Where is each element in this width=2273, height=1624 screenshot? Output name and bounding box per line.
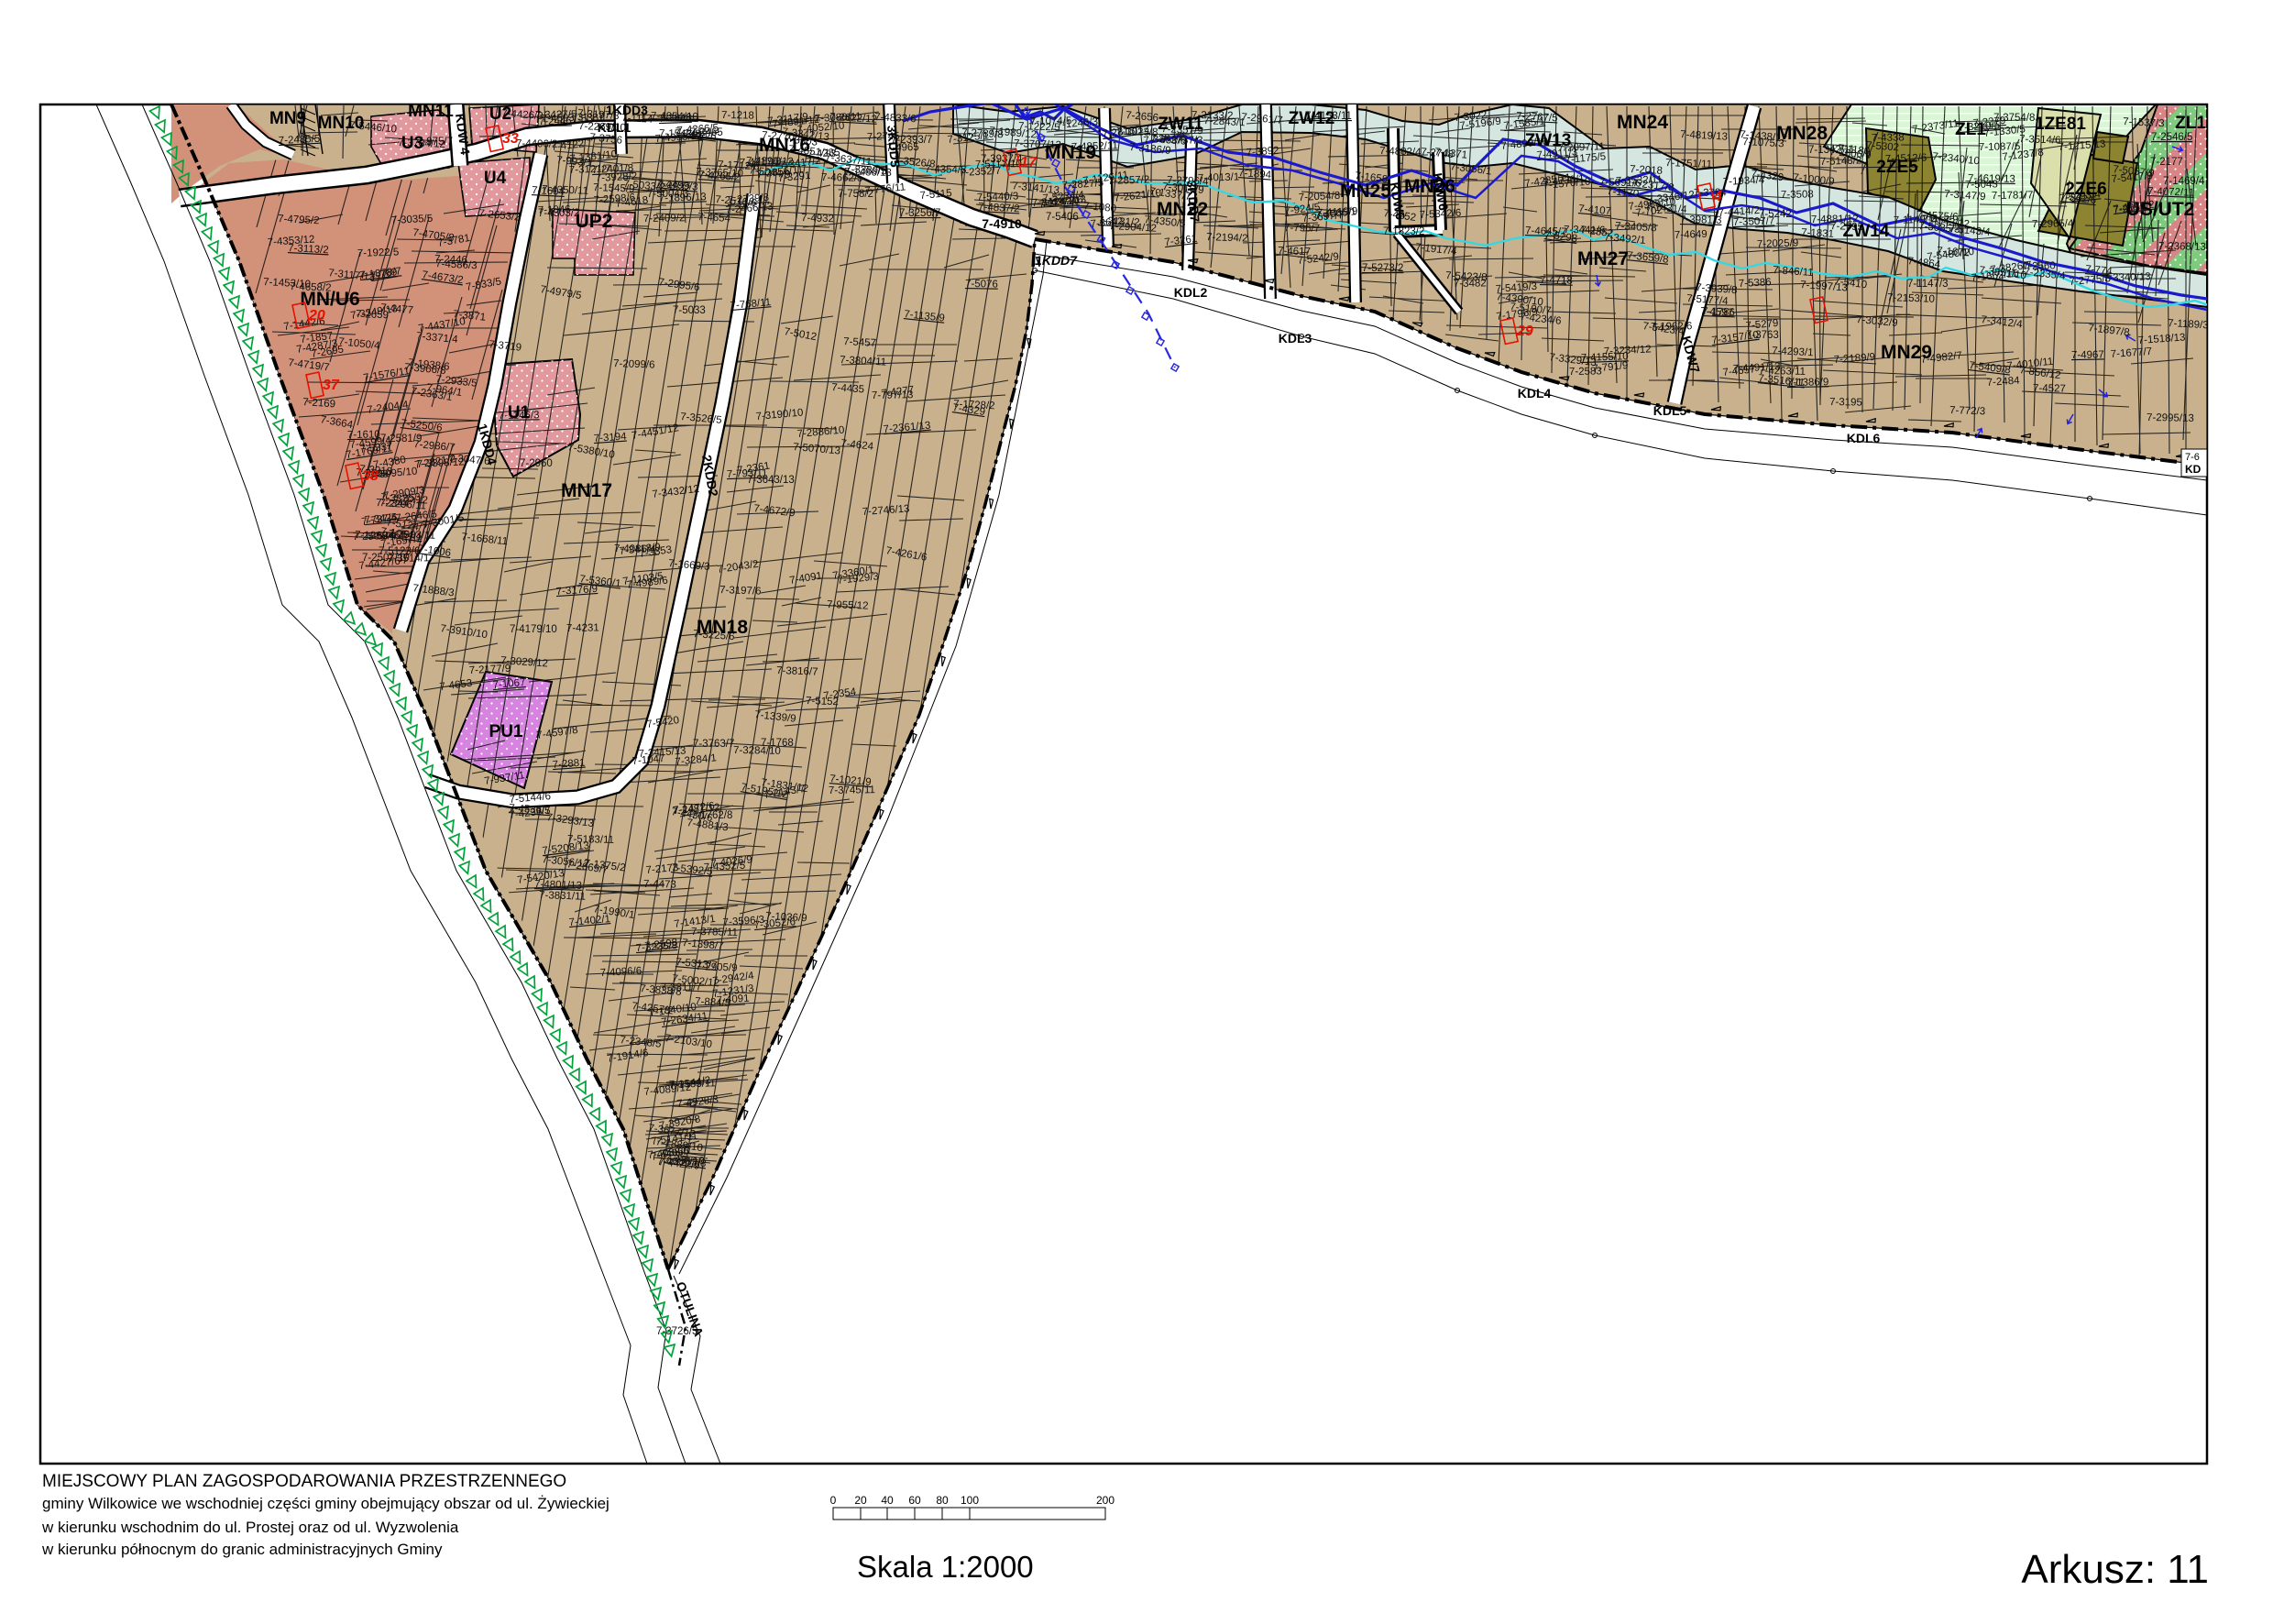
svg-text:7-2153/10: 7-2153/10 [1887,292,1935,305]
svg-text:7-5386: 7-5386 [1739,277,1772,290]
svg-text:MN25: MN25 [1340,181,1391,202]
svg-text:7-4837/2: 7-4837/2 [978,202,1020,214]
svg-text:ZW11: ZW11 [1158,115,1203,134]
svg-text:7-4649: 7-4649 [1675,229,1707,241]
svg-text:7-3441/6: 7-3441/6 [1564,225,1606,236]
svg-text:7-4932: 7-4932 [801,213,834,225]
svg-text:MN29: MN29 [1881,342,1932,363]
svg-text:7-1386/9: 7-1386/9 [1787,377,1829,389]
svg-text:7-5033: 7-5033 [673,305,706,316]
svg-text:7-797/13: 7-797/13 [872,390,914,401]
svg-text:7-2169: 7-2169 [302,397,336,410]
svg-text:7-5457: 7-5457 [843,336,876,349]
svg-text:UP2: UP2 [576,211,613,232]
svg-text:MN10: MN10 [318,114,365,133]
svg-text:7-5440/3: 7-5440/3 [977,191,1019,203]
svg-text:MN17: MN17 [561,480,612,501]
svg-text:w kierunku wschodnim do ul. P: w kierunku wschodnim do ul. Prostej oraz… [41,1519,459,1536]
svg-text:7-4586/3: 7-4586/3 [435,258,478,271]
svg-text:7-5117/10: 7-5117/10 [975,159,1022,170]
svg-text:7-4350/11: 7-4350/11 [542,184,588,197]
svg-text:7-1147/3: 7-1147/3 [1907,279,1949,290]
svg-text:7-5076: 7-5076 [965,279,998,291]
svg-text:7-4406/2: 7-4406/2 [516,138,558,150]
svg-text:0: 0 [830,1494,837,1507]
svg-text:MN24: MN24 [1617,112,1668,133]
svg-text:7-3816/7: 7-3816/7 [776,665,818,678]
svg-text:7-4882/4: 7-4882/4 [1379,146,1422,159]
svg-text:7-1934/4: 7-1934/4 [1723,175,1766,188]
svg-text:7-1823/2: 7-1823/2 [1383,226,1424,237]
svg-text:7-4967: 7-4967 [2071,349,2104,361]
svg-text:7-2659: 7-2659 [356,309,389,321]
svg-text:7-2881: 7-2881 [552,758,586,771]
svg-text:7-4435: 7-4435 [831,382,865,395]
svg-text:KDL5: KDL5 [1653,403,1687,418]
svg-text:7-2368/13: 7-2368/13 [2158,241,2206,253]
svg-text:7-2737/3: 7-2737/3 [1161,135,1203,147]
svg-text:4: 4 [1713,189,1722,204]
svg-text:7-2583: 7-2583 [1569,366,1602,378]
svg-text:7-3981/3: 7-3981/3 [1680,214,1722,226]
svg-text:7-1751/11: 7-1751/11 [1665,158,1712,170]
svg-text:KDL2: KDL2 [1174,285,1208,300]
svg-text:7-3763/7: 7-3763/7 [693,739,734,750]
svg-text:40: 40 [881,1494,894,1507]
svg-text:7-1672: 7-1672 [1937,246,1971,258]
svg-text:1KDD7: 1KDD7 [1035,253,1078,268]
svg-text:7-3113/2: 7-3113/2 [288,243,329,256]
svg-text:7-5406: 7-5406 [1046,212,1079,223]
svg-text:7-3284/10: 7-3284/10 [733,745,781,757]
svg-text:7-5242: 7-5242 [1759,209,1792,220]
svg-text:7-2857/2: 7-2857/2 [1108,174,1150,187]
svg-text:MN18: MN18 [697,617,748,638]
svg-text:MN28: MN28 [1776,123,1828,144]
svg-text:U3: U3 [401,134,423,153]
svg-text:MN16: MN16 [759,135,810,156]
svg-text:7-2485/5: 7-2485/5 [279,134,321,147]
svg-text:7-3194: 7-3194 [593,431,627,444]
svg-text:7-4833/6: 7-4833/6 [874,112,917,125]
svg-text:7-1046: 7-1046 [538,204,571,216]
svg-text:7-4179/10: 7-4179/10 [510,624,557,635]
svg-text:7-2546/5: 7-2546/5 [2151,132,2192,143]
svg-text:KDL4: KDL4 [1518,386,1552,401]
svg-text:7-3405/8: 7-3405/8 [1615,221,1657,234]
svg-text:U2: U2 [489,104,511,124]
svg-text:1KDD3: 1KDD3 [606,103,648,117]
svg-text:MN27: MN27 [1577,248,1629,269]
svg-text:KDL6: KDL6 [1847,431,1881,445]
svg-text:100: 100 [961,1494,979,1507]
svg-text:KDL3: KDL3 [1279,331,1312,346]
svg-text:7-1537/3: 7-1537/3 [2123,116,2165,129]
svg-text:7-1036/9: 7-1036/9 [765,911,807,924]
svg-text:7-1781/7: 7-1781/7 [1992,190,2034,202]
svg-text:7-2018: 7-2018 [1630,164,1663,177]
svg-text:w kierunku północnym do granic: w kierunku północnym do granic administr… [41,1541,443,1558]
svg-text:7-2560: 7-2560 [2023,260,2056,272]
svg-text:7-4096/6: 7-4096/6 [600,966,642,979]
svg-text:80: 80 [936,1494,949,1507]
svg-text:7-1189/3: 7-1189/3 [2168,318,2209,331]
svg-text:Skala 1:2000: Skala 1:2000 [857,1550,1034,1584]
svg-text:7-3514/6: 7-3514/6 [2019,134,2061,147]
svg-text:7-1218: 7-1218 [721,110,754,122]
svg-text:7-5423/8: 7-5423/8 [1445,270,1488,283]
svg-text:7-4231: 7-4231 [566,622,599,634]
svg-text:ZL1: ZL1 [2175,114,2206,133]
svg-text:7-3892: 7-3892 [1246,146,1279,159]
svg-text:7-4072/11: 7-4072/11 [2147,186,2194,199]
svg-text:7-4263/11: 7-4263/11 [1759,366,1806,378]
svg-text:7-2484: 7-2484 [1986,375,2020,389]
svg-text:7-2995/13: 7-2995/13 [2147,412,2194,424]
svg-text:7-3785/11: 7-3785/11 [691,927,738,938]
svg-text:7-1896/13: 7-1896/13 [659,192,707,204]
svg-text:gminy Wilkowice we wschodniej: gminy Wilkowice we wschodniej części gmi… [42,1495,609,1512]
svg-text:PU1: PU1 [489,722,523,741]
svg-text:7-3197/6: 7-3197/6 [719,585,762,598]
svg-text:7-5183/11: 7-5183/11 [567,834,614,846]
svg-text:ZW14: ZW14 [1843,222,1890,241]
svg-text:MN11: MN11 [408,102,454,121]
svg-text:7-3848: 7-3848 [659,113,692,125]
svg-text:KD: KD [2185,463,2202,476]
svg-text:7-2905/9: 7-2905/9 [696,961,738,974]
svg-text:2ZE6: 2ZE6 [2065,180,2106,199]
svg-text:7-3811/7: 7-3811/7 [661,982,702,993]
svg-text:ZW13: ZW13 [1525,131,1572,150]
svg-text:7-1610: 7-1610 [347,429,380,441]
svg-text:7-1831: 7-1831 [1801,227,1834,240]
svg-text:7-1469/4: 7-1469/4 [2163,176,2205,187]
svg-text:7-4801/13: 7-4801/13 [534,879,582,892]
svg-text:7-1728/2: 7-1728/2 [953,399,995,411]
svg-text:7-772/3: 7-772/3 [1949,405,1985,417]
svg-text:7-4662/5: 7-4662/5 [821,172,863,184]
svg-text:7-2177: 7-2177 [2150,157,2183,168]
svg-text:7-4293/1: 7-4293/1 [1772,346,1814,358]
svg-text:Arkusz: 11: Arkusz: 11 [2021,1547,2209,1592]
svg-text:1ZE81: 1ZE81 [2035,115,2086,134]
svg-text:MIEJSCOWY PLAN ZAGOSPODAROWANI: MIEJSCOWY PLAN ZAGOSPODAROWANIA PRZESTRZ… [42,1472,566,1491]
svg-text:38: 38 [362,468,379,484]
svg-text:KDL1: KDL1 [598,120,631,135]
svg-text:37: 37 [323,378,340,393]
svg-text:7-2960: 7-2960 [520,458,553,469]
svg-text:ZW12: ZW12 [1289,109,1335,128]
svg-text:7-884/5: 7-884/5 [695,996,731,1009]
svg-text:MN9: MN9 [269,109,306,128]
svg-text:29: 29 [1516,324,1533,339]
svg-text:7-5043: 7-5043 [1965,179,1998,191]
svg-text:7-3035/5: 7-3035/5 [391,214,434,226]
svg-text:33: 33 [502,131,519,147]
svg-text:200: 200 [1096,1494,1115,1507]
svg-text:7-4910: 7-4910 [982,216,1022,231]
svg-text:7-2965/4: 7-2965/4 [2032,218,2074,230]
svg-text:7-4645/7: 7-4645/7 [1525,225,1567,238]
svg-text:20: 20 [308,308,325,324]
svg-text:60: 60 [908,1494,921,1507]
svg-text:US/UT2: US/UT2 [2126,199,2195,220]
svg-text:7-1786: 7-1786 [1702,306,1735,318]
svg-text:7-3831/11: 7-3831/11 [539,890,586,903]
svg-text:7-5273/2: 7-5273/2 [1362,263,1403,274]
svg-text:7-4473: 7-4473 [643,879,676,891]
svg-text:7-758/2: 7-758/2 [838,189,873,200]
svg-text:7-3195: 7-3195 [1829,397,1862,409]
svg-text:7-3427/5: 7-3427/5 [535,109,577,121]
svg-text:2ZE5: 2ZE5 [1876,158,1918,177]
svg-text:7-3508: 7-3508 [1781,189,1814,201]
svg-text:7-4086/4: 7-4086/4 [614,543,656,555]
svg-text:U4: U4 [484,169,507,188]
svg-text:17: 17 [1020,155,1038,170]
svg-text:7-1962/6: 7-1962/6 [1651,321,1693,333]
svg-text:7-2194/2: 7-2194/2 [1206,232,1248,245]
svg-text:7-1922/5: 7-1922/5 [357,247,400,259]
svg-text:7-3256/7: 7-3256/7 [899,208,940,219]
svg-text:MN/U6: MN/U6 [300,289,359,310]
svg-text:7-955/12: 7-955/12 [827,599,869,612]
svg-text:7-2409/2: 7-2409/2 [643,213,686,225]
svg-text:7-4527: 7-4527 [2033,383,2066,395]
svg-text:7-5152: 7-5152 [806,696,839,708]
svg-text:7-4718: 7-4718 [1540,275,1573,287]
svg-text:20: 20 [854,1494,867,1507]
svg-text:ZL1: ZL1 [1955,120,1986,139]
svg-text:7-2099/6: 7-2099/6 [613,358,655,371]
svg-text:MN19: MN19 [1045,142,1096,163]
svg-text:7-2025/9: 7-2025/9 [1757,237,1799,250]
svg-text:7-2131/2: 7-2131/2 [1098,215,1140,228]
svg-text:7-3643/13: 7-3643/13 [747,475,795,486]
svg-text:7-1087/5: 7-1087/5 [1979,141,2021,153]
svg-text:7-6: 7-6 [2185,452,2200,463]
svg-text:7-1894: 7-1894 [1238,168,1272,181]
svg-text:U1: U1 [508,403,531,422]
svg-text:7-4795/2: 7-4795/2 [278,214,320,226]
